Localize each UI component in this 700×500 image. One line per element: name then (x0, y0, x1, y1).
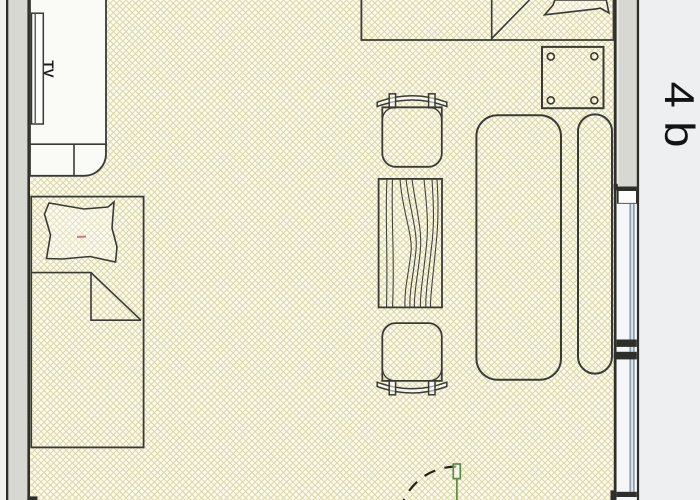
svg-text:TV: TV (41, 60, 56, 77)
svg-text:4 b: 4 b (656, 82, 700, 148)
